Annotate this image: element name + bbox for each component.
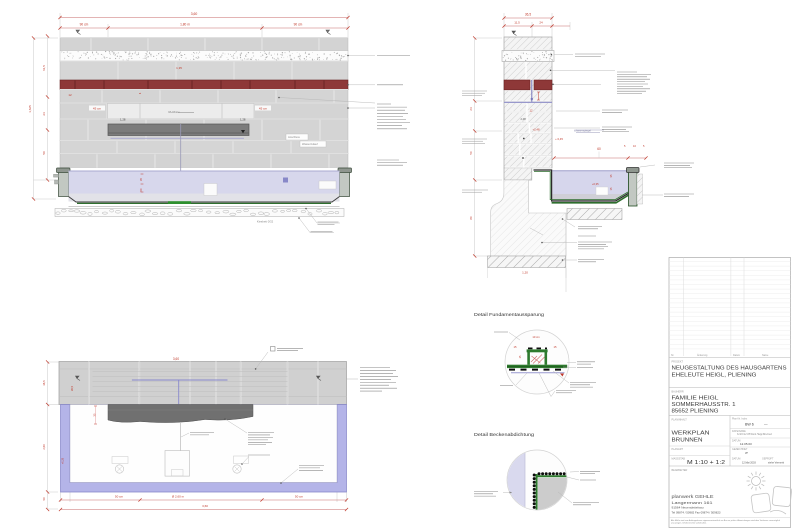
svg-text:PLANINHALT: PLANINHALT <box>672 419 688 422</box>
svg-text:Name: Name <box>762 354 769 357</box>
svg-text:DATUM: DATUM <box>732 458 740 461</box>
svg-text:1,35: 1,35 <box>176 66 182 70</box>
svg-text:24: 24 <box>42 112 46 116</box>
svg-text:3,60: 3,60 <box>191 12 198 16</box>
svg-text:15: 15 <box>554 345 557 349</box>
svg-text:SOMMERHAUSSTR. 1: SOMMERHAUSSTR. 1 <box>672 402 736 408</box>
svg-text:anzuzeigen. Urheberrechte vorb: anzuzeigen. Urheberrechte vorbehalten. <box>671 522 707 525</box>
svg-text:Alle Maße sind vom Auftragnehm: Alle Maße sind vom Auftragnehmer eigenve… <box>671 519 780 522</box>
svg-text:60: 60 <box>597 147 601 151</box>
svg-text:50: 50 <box>469 151 473 155</box>
svg-text:siehe Vermerk: siehe Vermerk <box>768 462 785 465</box>
svg-text:90 cm: 90 cm <box>294 23 303 27</box>
svg-text:+2,48: +2,48 <box>532 128 540 132</box>
svg-text:Änderung: Änderung <box>697 354 708 357</box>
svg-text:FAMILIE HEIGL: FAMILIE HEIGL <box>672 396 719 402</box>
svg-text:WERKPLAN: WERKPLAN <box>672 431 710 437</box>
svg-text:85652 PLIENING: 85652 PLIENING <box>672 409 719 415</box>
svg-text:VA-Rinne: VA-Rinne <box>168 110 180 114</box>
svg-text:1,20: 1,20 <box>522 271 528 275</box>
svg-text:Kiesbett 0/32: Kiesbett 0/32 <box>257 220 274 224</box>
svg-text:24: 24 <box>469 107 473 111</box>
svg-text:Wasserspiegel: Wasserspiegel <box>574 129 591 133</box>
svg-text:BAUHERR: BAUHERR <box>672 391 684 394</box>
svg-text:2,60: 2,60 <box>42 444 46 450</box>
svg-text:50 cm: 50 cm <box>295 495 304 499</box>
svg-text:45 cm: 45 cm <box>259 107 268 111</box>
svg-text:50: 50 <box>42 497 46 500</box>
svg-text:1,80 m: 1,80 m <box>180 23 190 27</box>
svg-text:PLANART: PLANART <box>672 448 684 451</box>
svg-text:EHELEUTE HEIGL, PLIENING: EHELEUTE HEIGL, PLIENING <box>672 373 757 379</box>
svg-text:1,28: 1,28 <box>120 118 126 122</box>
svg-text:3,60: 3,60 <box>202 504 208 508</box>
svg-text:61,5: 61,5 <box>42 65 46 71</box>
svg-text:Nr.: Nr. <box>671 354 674 357</box>
svg-text:3,60: 3,60 <box>173 357 179 361</box>
svg-text:M 1:10 + 1:2: M 1:10 + 1:2 <box>687 460 725 466</box>
svg-text:+0,35: +0,35 <box>592 182 599 186</box>
svg-text:12: 12 <box>68 93 72 97</box>
svg-text:+ 0,45: + 0,45 <box>555 137 563 141</box>
svg-text:BEARBEITER: BEARBEITER <box>672 469 688 472</box>
svg-text:90 cm: 90 cm <box>80 23 89 27</box>
svg-text:10 cm: 10 cm <box>532 335 540 339</box>
svg-text:Detail Fundamentaussparung: Detail Fundamentaussparung <box>474 312 545 317</box>
svg-text:45 cm: 45 cm <box>93 107 102 111</box>
svg-text:MASSSTAB: MASSSTAB <box>672 458 686 461</box>
svg-text:50 cm: 50 cm <box>115 495 124 499</box>
svg-text:36,5: 36,5 <box>42 380 46 386</box>
svg-text:S:\04 \12 05 Werk Heigl-Brunne: S:\04 \12 05 Werk Heigl-Brunnen <box>737 433 773 436</box>
svg-text:+0,35: +0,35 <box>62 457 65 464</box>
svg-text:Langermann 161: Langermann 161 <box>672 500 714 505</box>
svg-text:11,5: 11,5 <box>514 21 520 25</box>
svg-text:Anschluss: Anschluss <box>288 135 301 139</box>
svg-text:Wasserzulauf: Wasserzulauf <box>302 142 318 146</box>
svg-text:12.05.03: 12.05.03 <box>740 442 752 446</box>
svg-text:2,48: 2,48 <box>520 117 526 121</box>
svg-text:36,5: 36,5 <box>525 13 531 17</box>
svg-text:80: 80 <box>469 216 473 220</box>
svg-text:BW 6: BW 6 <box>745 423 754 427</box>
svg-text:planwerk GEHLE: planwerk GEHLE <box>672 494 714 499</box>
svg-text:15: 15 <box>514 345 517 349</box>
svg-text:—: — <box>764 423 768 427</box>
svg-text:Datum: Datum <box>733 354 740 357</box>
svg-text:12: 12 <box>529 109 533 113</box>
svg-text:Detail Beckenabdichtung: Detail Beckenabdichtung <box>474 432 535 437</box>
svg-text:BRUNNEN: BRUNNEN <box>672 438 703 444</box>
svg-text:24: 24 <box>539 21 543 25</box>
svg-text:Ø 2,60 m: Ø 2,60 m <box>172 495 185 499</box>
svg-text:1,28: 1,28 <box>240 118 246 122</box>
svg-text:1,625: 1,625 <box>28 105 32 113</box>
svg-text:50: 50 <box>42 151 46 155</box>
svg-text:GEPRÜFT: GEPRÜFT <box>762 458 774 461</box>
svg-text:91564 Neuendettelsau: 91564 Neuendettelsau <box>672 506 704 510</box>
svg-text:36,5: 36,5 <box>70 385 74 391</box>
svg-text:12.Mai 2003: 12.Mai 2003 <box>742 462 756 465</box>
svg-text:PROJEKT: PROJEKT <box>672 361 684 364</box>
svg-text:Tel 09874 / 50982 Fax 09874: Tel 09874 / 50982 Fax 09874 / 509823 <box>672 511 721 515</box>
svg-text:NEUGESTALTUNG DES HAUSGARTENS: NEUGESTALTUNG DES HAUSGARTENS <box>672 366 788 372</box>
svg-text:Plan-Nr. Index: Plan-Nr. Index <box>732 418 748 421</box>
